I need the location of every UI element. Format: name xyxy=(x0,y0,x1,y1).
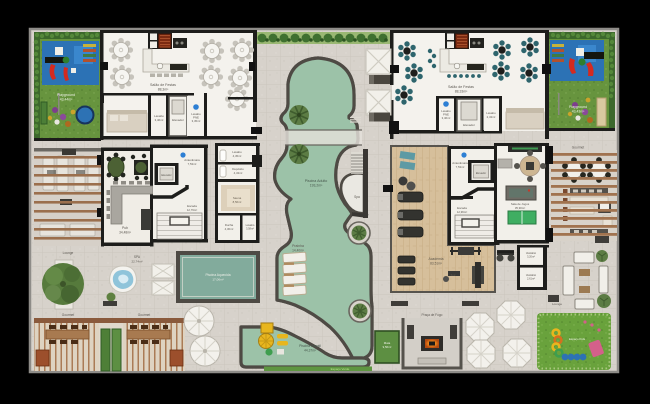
svg-text:Praça de Fogo: Praça de Fogo xyxy=(422,313,443,317)
svg-text:9,56m²: 9,56m² xyxy=(383,345,392,349)
svg-text:Academia: Academia xyxy=(428,257,443,261)
svg-text:12,79m²: 12,79m² xyxy=(187,208,197,212)
svg-text:3,58m²: 3,58m² xyxy=(246,227,254,231)
svg-text:Prainha: Prainha xyxy=(292,244,304,248)
svg-text:2,43m²: 2,43m² xyxy=(487,115,496,119)
svg-text:35,90m²: 35,90m² xyxy=(515,206,525,210)
svg-text:Lounge: Lounge xyxy=(552,302,562,306)
svg-text:8,56m²: 8,56m² xyxy=(233,200,242,204)
svg-text:Lavabo: Lavabo xyxy=(246,223,255,227)
svg-text:Playground: Playground xyxy=(57,93,75,97)
svg-text:Elevador: Elevador xyxy=(463,123,475,127)
svg-text:Salão de Festas: Salão de Festas xyxy=(150,83,176,87)
svg-text:88,33m²: 88,33m² xyxy=(455,90,468,94)
svg-text:88,3m²: 88,3m² xyxy=(158,88,169,92)
svg-text:Gourmet: Gourmet xyxy=(62,313,75,317)
svg-text:14,40m²: 14,40m² xyxy=(292,248,304,252)
svg-text:Elevador: Elevador xyxy=(161,173,171,177)
svg-text:Elevador: Elevador xyxy=(476,171,486,175)
svg-text:Playground: Playground xyxy=(569,105,587,109)
svg-text:SPA: SPA xyxy=(134,255,141,259)
svg-text:Espaço Verde: Espaço Verde xyxy=(331,367,350,371)
svg-text:83,51m²: 83,51m² xyxy=(430,261,442,265)
svg-text:Espaço Kids: Espaço Kids xyxy=(569,337,586,341)
svg-text:Piscina Infantil: Piscina Infantil xyxy=(299,344,321,348)
svg-text:2,61m²: 2,61m² xyxy=(527,277,535,281)
svg-text:5x2: 5x2 xyxy=(451,273,456,277)
svg-text:Gourmet: Gourmet xyxy=(572,146,585,150)
svg-text:193,2m²: 193,2m² xyxy=(310,184,323,188)
svg-text:44,37m²: 44,37m² xyxy=(304,349,316,353)
svg-text:Lounge: Lounge xyxy=(63,251,74,255)
svg-text:Salão de Festas: Salão de Festas xyxy=(448,85,474,89)
svg-text:Spa: Spa xyxy=(354,195,360,199)
svg-text:3,46m²: 3,46m² xyxy=(442,116,451,120)
svg-text:Vestiário: Vestiário xyxy=(526,273,537,277)
svg-text:4,45m²: 4,45m² xyxy=(233,154,242,158)
svg-text:43,44m²: 43,44m² xyxy=(60,98,73,102)
svg-text:Vestiário: Vestiário xyxy=(526,251,537,255)
svg-text:3,45m²: 3,45m² xyxy=(192,119,201,123)
svg-text:12,96m²: 12,96m² xyxy=(457,210,467,214)
svg-text:Piscina Adulto: Piscina Adulto xyxy=(305,179,328,183)
svg-text:7,53m²: 7,53m² xyxy=(456,165,465,169)
svg-text:43,43m²: 43,43m² xyxy=(572,110,585,114)
svg-text:Pub: Pub xyxy=(122,226,128,230)
svg-text:3,20m²: 3,20m² xyxy=(527,255,535,259)
svg-text:34,48m²: 34,48m² xyxy=(119,230,131,234)
svg-text:4,30m²: 4,30m² xyxy=(225,227,234,231)
svg-text:17,06m²: 17,06m² xyxy=(212,277,223,281)
svg-text:7,53m²: 7,53m² xyxy=(188,162,197,166)
svg-text:22,74m²: 22,74m² xyxy=(131,259,142,263)
svg-text:Elevador: Elevador xyxy=(172,118,184,122)
svg-text:4,43m²: 4,43m² xyxy=(234,171,243,175)
svg-text:3,46m²: 3,46m² xyxy=(155,118,164,122)
svg-text:Gourmet: Gourmet xyxy=(138,313,151,317)
svg-text:Piscina Aquecida: Piscina Aquecida xyxy=(205,273,230,277)
